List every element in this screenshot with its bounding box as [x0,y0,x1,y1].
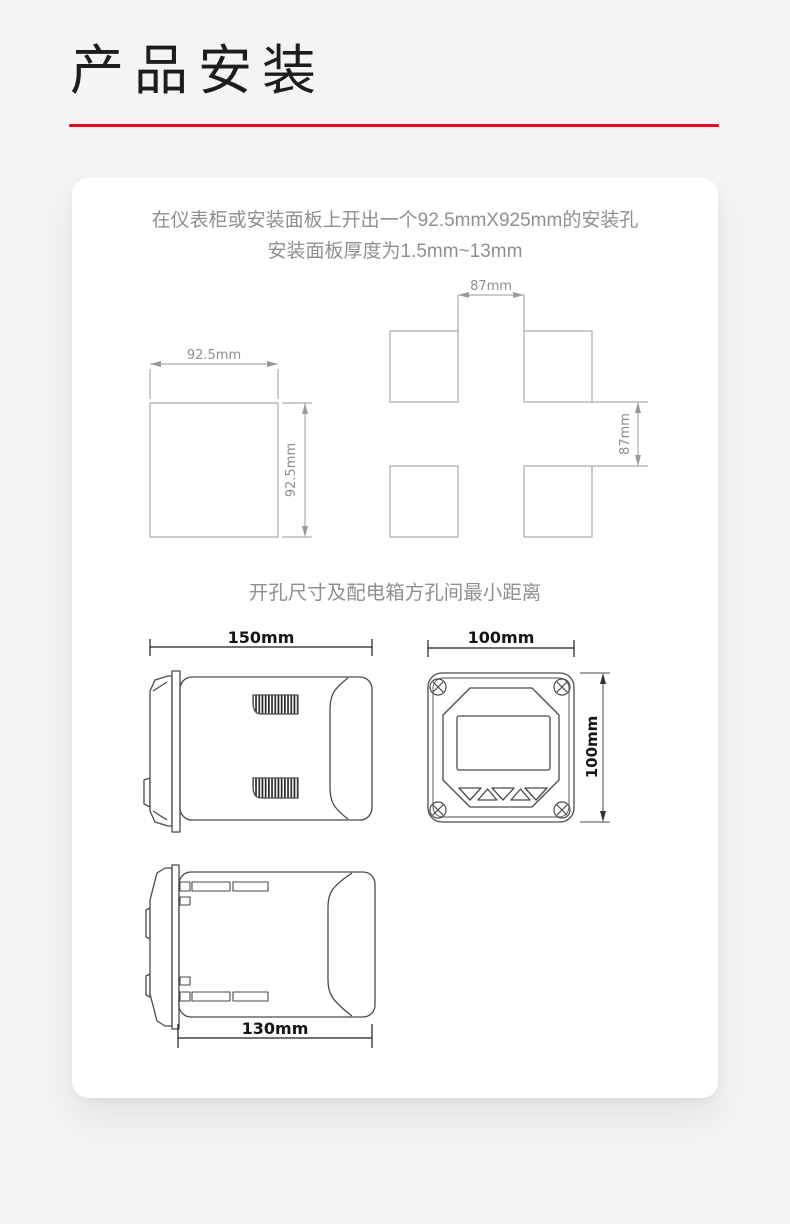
side-view-width-label: 150mm [228,630,295,647]
spacing-square-bl [390,466,458,537]
front-view-diagram: 100mm 100mm [410,630,640,840]
side-view-diagram: 150mm [140,630,380,835]
content-card: 在仪表柜或安装面板上开出一个92.5mmX925mm的安装孔 安装面板厚度为1.… [72,178,718,1098]
front-outer-frame [428,673,574,822]
spacing-vertical-label: 87mm [618,413,633,455]
side-latch [144,778,150,807]
spacing-square-tl [390,331,458,402]
dimension-arrowheads [150,292,641,537]
top-view-width-label: 130mm [242,1019,309,1038]
cutout-and-spacing-diagram: 92.5mm 92.5mm 87mm 87mm [140,280,660,560]
page-title: 产品安装 [70,42,326,101]
cutout-square [150,403,278,537]
front-view-height-label: 100mm [583,716,601,779]
intro-text: 在仪表柜或安装面板上开出一个92.5mmX925mm的安装孔 安装面板厚度为1.… [72,205,718,267]
spacing-square-br [524,466,592,537]
diagram-caption: 开孔尺寸及配电箱方孔间最小距离 [72,580,718,606]
top-bezel [150,868,172,1026]
intro-line-2: 安装面板厚度为1.5mm~13mm [72,236,718,267]
front-inner-frame [433,678,569,817]
top-flange [172,865,179,1029]
front-view-width-label: 100mm [468,630,535,647]
side-ribbed-clamp-top [253,695,298,714]
cutout-width-label: 92.5mm [187,348,241,363]
intro-line-1: 在仪表柜或安装面板上开出一个92.5mmX925mm的安装孔 [72,205,718,236]
lcd-display [457,716,550,770]
spacing-horizontal-label: 87mm [470,280,512,294]
side-bezel [150,676,172,826]
top-view-diagram: 130mm [135,860,390,1050]
button-down-1 [459,788,481,800]
side-flange [172,671,180,832]
side-ribbed-clamp-bottom [253,778,298,798]
spacing-square-tr [524,331,592,402]
cutout-height-label: 92.5mm [284,443,299,497]
title-underline [69,124,719,127]
